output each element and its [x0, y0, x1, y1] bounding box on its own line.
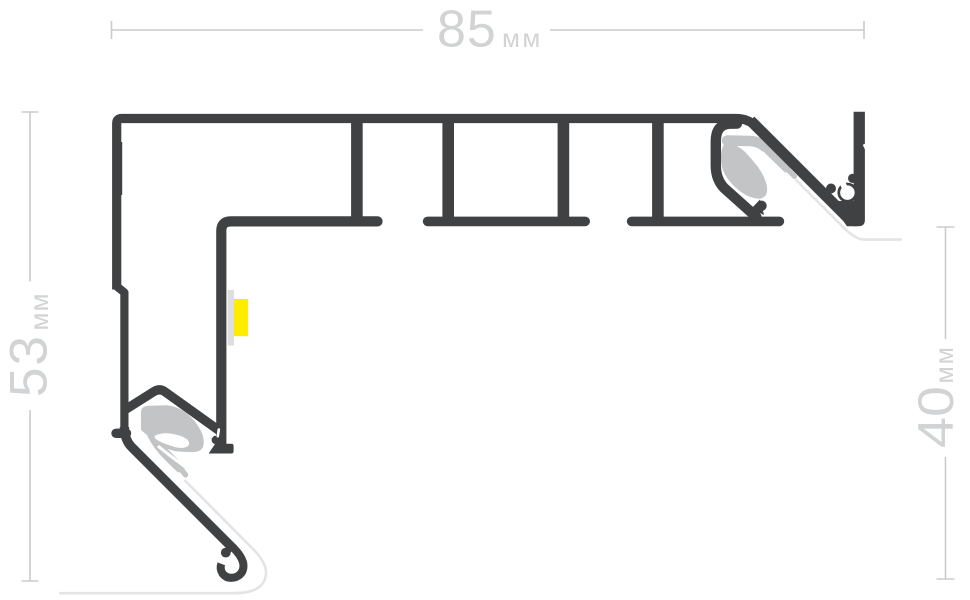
- svg-text:мм: мм: [502, 23, 543, 53]
- svg-text:40: 40: [907, 386, 964, 448]
- svg-text:85: 85: [437, 1, 497, 59]
- svg-text:53: 53: [0, 334, 59, 397]
- svg-text:мм: мм: [24, 292, 54, 330]
- svg-text:мм: мм: [931, 345, 959, 383]
